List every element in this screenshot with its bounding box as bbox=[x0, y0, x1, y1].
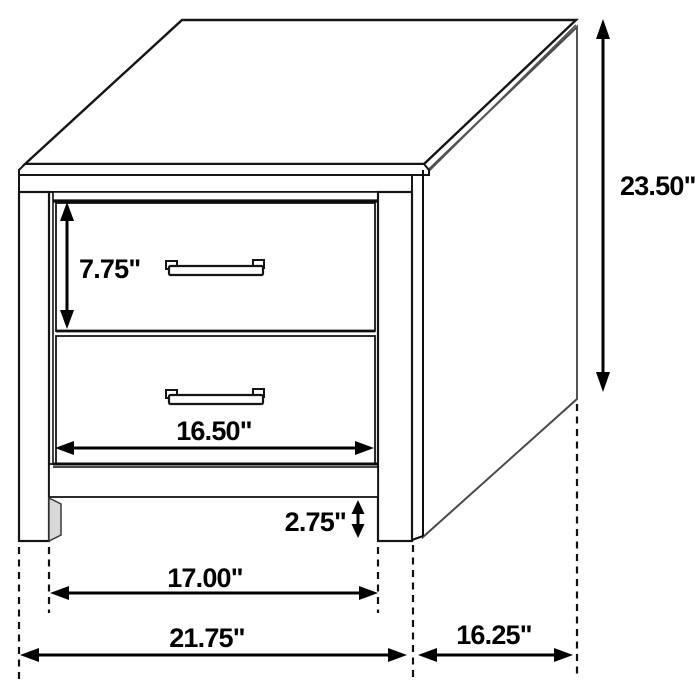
top-rail bbox=[19, 175, 412, 192]
arrowhead-right bbox=[554, 648, 573, 662]
left-stile-leg bbox=[19, 192, 49, 541]
arrowhead-left bbox=[20, 648, 39, 662]
dimension-overall-height: 23.50" bbox=[596, 19, 696, 392]
handle-bar bbox=[169, 395, 263, 404]
handle-bar bbox=[169, 266, 263, 275]
top-front-edge bbox=[19, 164, 429, 175]
dimension-leg-span: 17.00" bbox=[50, 563, 378, 600]
dim-label-top-drawer-height: 7.75" bbox=[79, 254, 140, 284]
arrowhead-right bbox=[388, 648, 407, 662]
dim-label-drawer-width: 16.50" bbox=[176, 416, 252, 446]
dim-label-leg-span: 17.00" bbox=[167, 563, 243, 593]
arrowhead-up bbox=[596, 19, 610, 39]
dim-label-depth: 16.25" bbox=[456, 620, 532, 650]
right-leg-bottom-chamfer bbox=[412, 536, 423, 540]
dimension-bottom-clearance: 2.75" bbox=[285, 500, 365, 538]
right-stile-leg bbox=[378, 192, 412, 541]
dim-label-bottom-clearance: 2.75" bbox=[285, 507, 346, 537]
arrowhead-down bbox=[596, 372, 610, 392]
arrowhead-right bbox=[359, 586, 378, 600]
arrowhead-down bbox=[352, 524, 365, 538]
diagram-canvas: 7.75" 16.50" 2.75" 17.00" 21.75" 16.25" bbox=[0, 0, 700, 700]
left-leg-side bbox=[49, 498, 61, 541]
nightstand-dimension-diagram: 7.75" 16.50" 2.75" 17.00" 21.75" 16.25" bbox=[0, 0, 700, 700]
arrowhead-left bbox=[418, 648, 437, 662]
dim-label-overall-width: 21.75" bbox=[169, 623, 245, 653]
arrowhead-up bbox=[352, 500, 365, 514]
dimension-overall-width: 21.75" bbox=[20, 623, 407, 662]
arrowhead-left bbox=[50, 586, 69, 600]
bottom-rail bbox=[49, 464, 378, 497]
dimension-depth: 16.25" bbox=[418, 620, 573, 662]
dim-label-overall-height: 23.50" bbox=[620, 171, 696, 201]
